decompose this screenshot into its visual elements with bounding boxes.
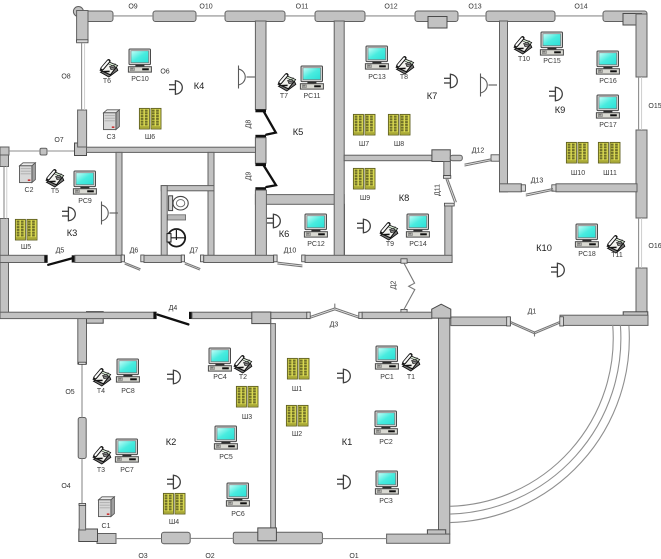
svg-text:Ш9: Ш9: [360, 195, 370, 202]
svg-text:C1: C1: [102, 523, 111, 530]
svg-text:C2: C2: [25, 187, 34, 194]
svg-text:О5: О5: [65, 389, 74, 396]
svg-text:О4: О4: [61, 483, 70, 490]
svg-text:PC17: PC17: [599, 122, 617, 129]
svg-text:T1: T1: [407, 374, 415, 381]
svg-text:К1: К1: [342, 437, 353, 447]
svg-text:О6: О6: [160, 69, 169, 76]
svg-text:PC15: PC15: [543, 58, 561, 65]
svg-text:О7: О7: [54, 137, 63, 144]
svg-text:Ш2: Ш2: [292, 431, 302, 438]
svg-text:T6: T6: [103, 78, 111, 85]
svg-text:PC10: PC10: [131, 76, 149, 83]
svg-text:Д12: Д12: [472, 148, 485, 155]
svg-text:PC12: PC12: [307, 241, 325, 248]
svg-text:PC14: PC14: [409, 241, 427, 248]
svg-text:Д9: Д9: [246, 172, 253, 181]
svg-text:К10: К10: [536, 243, 552, 253]
svg-text:О11: О11: [296, 4, 309, 11]
svg-text:Д7: Д7: [190, 248, 199, 255]
svg-text:PC13: PC13: [368, 74, 386, 81]
svg-text:PC2: PC2: [379, 439, 393, 446]
svg-text:Д8: Д8: [246, 120, 253, 129]
svg-text:T5: T5: [51, 188, 59, 195]
svg-text:О2: О2: [205, 553, 214, 559]
svg-text:PC5: PC5: [219, 454, 233, 461]
svg-text:T9: T9: [386, 241, 394, 248]
svg-text:T11: T11: [611, 252, 623, 259]
svg-text:PC8: PC8: [121, 388, 135, 395]
svg-text:Ш5: Ш5: [21, 244, 31, 251]
svg-text:C3: C3: [107, 134, 116, 141]
svg-text:О14: О14: [574, 4, 587, 11]
svg-text:T8: T8: [400, 74, 408, 81]
svg-text:К9: К9: [555, 105, 566, 115]
svg-text:К5: К5: [293, 127, 304, 137]
svg-text:Д11: Д11: [435, 184, 442, 196]
svg-text:Д6: Д6: [130, 248, 139, 255]
svg-text:PC4: PC4: [213, 374, 227, 381]
svg-text:T4: T4: [97, 388, 105, 395]
svg-text:Д10: Д10: [284, 248, 297, 255]
svg-text:О10: О10: [199, 4, 212, 11]
svg-text:О8: О8: [61, 74, 70, 81]
svg-text:PC16: PC16: [599, 78, 617, 85]
svg-text:К7: К7: [427, 91, 438, 101]
svg-text:К6: К6: [279, 229, 290, 239]
svg-text:Ш8: Ш8: [394, 141, 404, 148]
svg-text:Д5: Д5: [56, 248, 65, 255]
svg-text:К3: К3: [67, 228, 78, 238]
svg-text:О13: О13: [468, 4, 481, 11]
svg-text:О15: О15: [648, 103, 661, 110]
svg-text:Д2: Д2: [391, 281, 398, 290]
svg-text:О16: О16: [648, 243, 661, 250]
svg-text:Д1: Д1: [528, 309, 537, 316]
svg-text:T7: T7: [280, 93, 288, 100]
svg-text:T10: T10: [518, 56, 530, 63]
svg-text:Ш3: Ш3: [242, 414, 252, 421]
svg-text:T2: T2: [239, 374, 247, 381]
svg-text:К4: К4: [194, 81, 205, 91]
svg-text:PC18: PC18: [578, 251, 596, 258]
svg-text:PC7: PC7: [120, 467, 134, 474]
svg-text:Ш6: Ш6: [145, 134, 155, 141]
svg-text:Ш10: Ш10: [571, 170, 585, 177]
svg-text:К2: К2: [166, 437, 177, 447]
svg-text:PC9: PC9: [78, 198, 92, 205]
svg-text:PC3: PC3: [379, 498, 393, 505]
svg-text:Ш11: Ш11: [603, 170, 617, 177]
svg-text:О3: О3: [138, 553, 147, 559]
svg-text:Ш7: Ш7: [359, 141, 369, 148]
svg-text:К8: К8: [399, 193, 410, 203]
svg-text:Ш4: Ш4: [169, 519, 179, 526]
svg-text:PC11: PC11: [304, 93, 321, 100]
svg-text:Д13: Д13: [531, 178, 544, 185]
svg-text:О12: О12: [384, 4, 397, 11]
svg-text:T3: T3: [97, 467, 105, 474]
svg-text:PC1: PC1: [380, 374, 394, 381]
svg-text:О1: О1: [349, 553, 358, 559]
svg-text:О9: О9: [128, 4, 137, 11]
svg-text:Д3: Д3: [330, 322, 339, 329]
svg-text:Д4: Д4: [169, 305, 178, 312]
svg-text:PC6: PC6: [231, 511, 245, 518]
svg-text:Ш1: Ш1: [292, 386, 302, 393]
